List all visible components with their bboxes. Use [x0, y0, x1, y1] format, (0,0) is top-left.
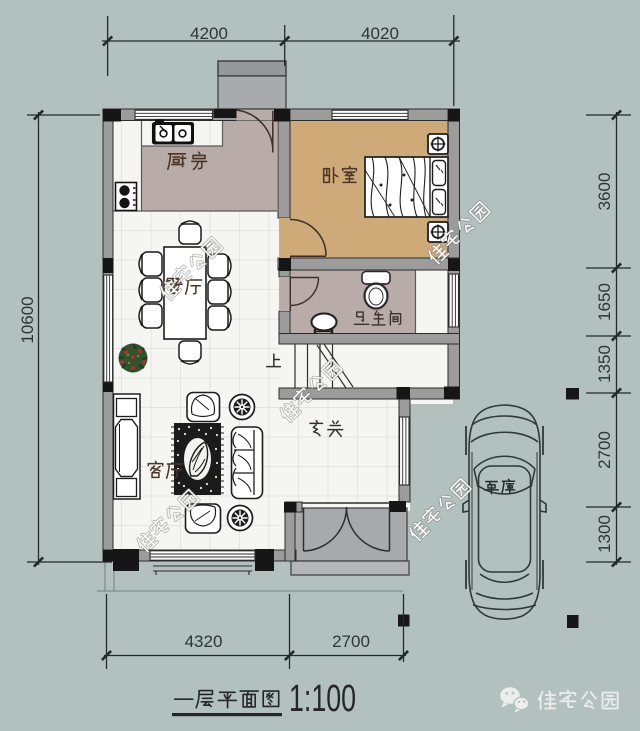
svg-text:4020: 4020	[361, 24, 399, 43]
svg-text:1350: 1350	[595, 345, 614, 383]
svg-text:4320: 4320	[185, 632, 223, 651]
svg-text:10600: 10600	[18, 296, 37, 343]
svg-text:2700: 2700	[332, 632, 370, 651]
svg-text:1300: 1300	[595, 515, 614, 553]
svg-text:1650: 1650	[595, 283, 614, 321]
svg-text:1:100: 1:100	[289, 678, 356, 720]
svg-text:3600: 3600	[595, 173, 614, 211]
svg-text:4200: 4200	[190, 24, 228, 43]
svg-text:2700: 2700	[595, 431, 614, 469]
